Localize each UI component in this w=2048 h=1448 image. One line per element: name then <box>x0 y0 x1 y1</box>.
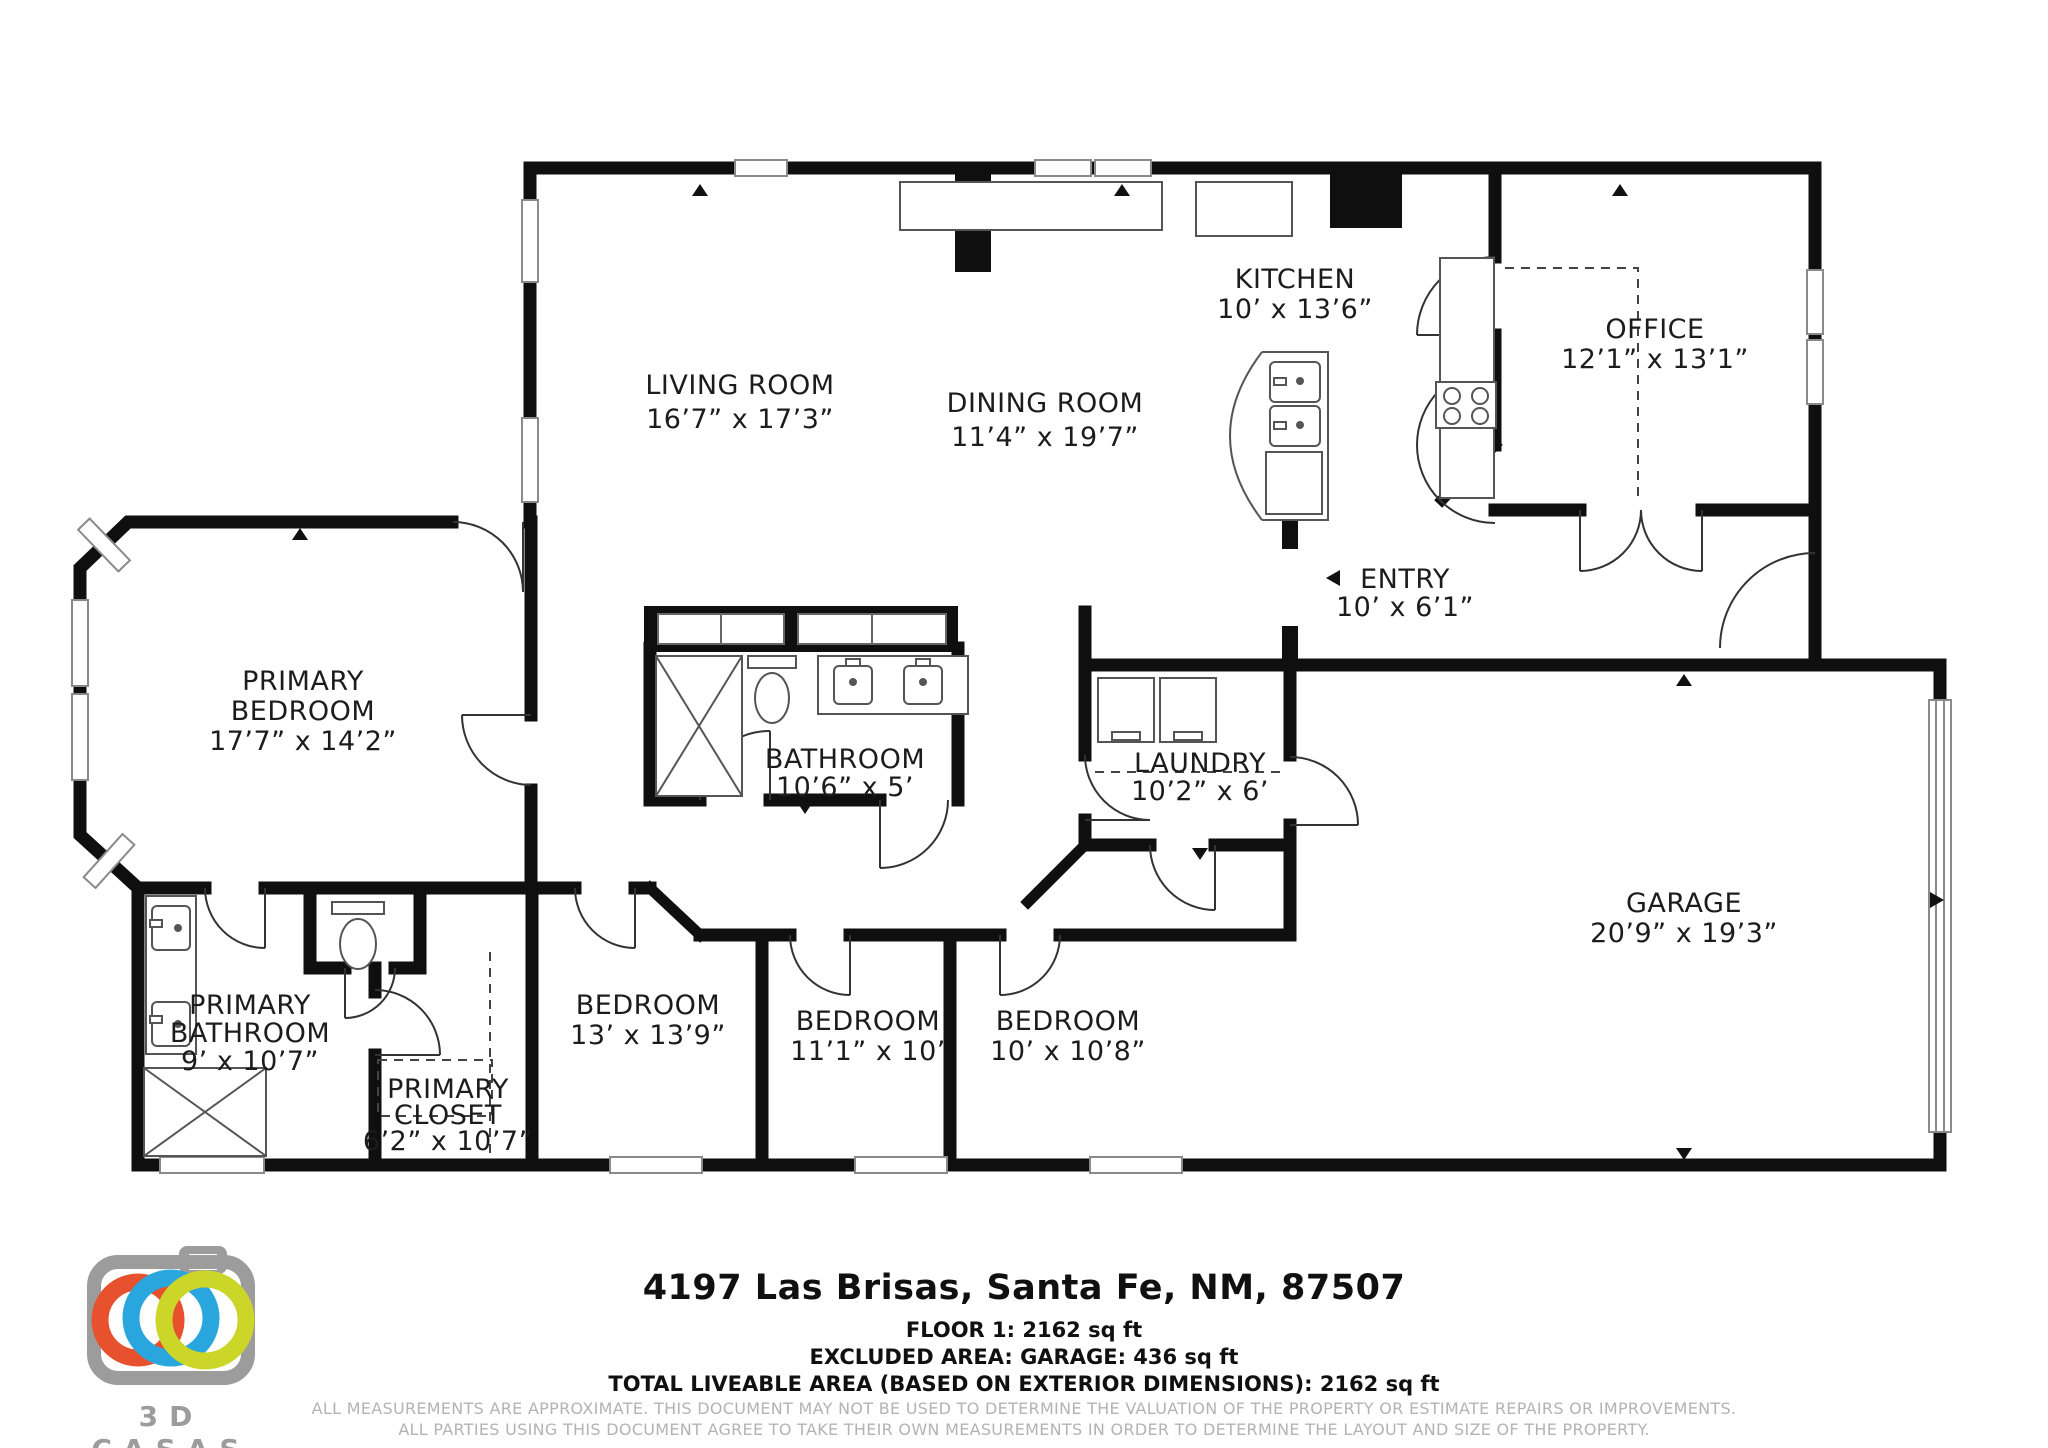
label-primary-bathroom-dims: 9’ x 10’7” <box>181 1046 319 1077</box>
disclaimer-line-1: ALL MEASUREMENTS ARE APPROXIMATE. THIS D… <box>0 1399 2048 1418</box>
label-dining-room-dims: 11’4” x 19’7” <box>951 422 1139 453</box>
label-laundry-name: LAUNDRY <box>1134 748 1266 779</box>
total-liveable-area: TOTAL LIVEABLE AREA (BASED ON EXTERIOR D… <box>0 1372 2048 1396</box>
primary-toilet-tank <box>332 902 384 914</box>
doors <box>205 257 1815 1055</box>
label-bedroom1-dims: 13’ x 13’9” <box>570 1020 726 1051</box>
fridge <box>1196 182 1292 236</box>
excluded-area: EXCLUDED AREA: GARAGE: 436 sq ft <box>0 1345 2048 1369</box>
label-bedroom3-name: BEDROOM <box>996 1006 1140 1037</box>
label-office-dims: 12’1” x 13’1” <box>1561 344 1749 375</box>
primary-toilet-bowl <box>340 919 376 969</box>
label-dining-room-name: DINING ROOM <box>947 388 1144 419</box>
footer: 4197 Las Brisas, Santa Fe, NM, 87507 FLO… <box>0 1268 2048 1441</box>
label-bathroom-name: BATHROOM <box>765 744 925 775</box>
label-garage-dims: 20’9” x 19’3” <box>1590 918 1778 949</box>
property-address: 4197 Las Brisas, Santa Fe, NM, 87507 <box>0 1268 2048 1308</box>
hall-closets <box>658 614 946 644</box>
label-primary-bathroom-name2: BATHROOM <box>170 1018 330 1049</box>
label-kitchen-name: KITCHEN <box>1235 264 1356 295</box>
label-bathroom-dims: 10’6” x 5’ <box>776 772 914 803</box>
label-laundry-dims: 10’2” x 6’ <box>1131 776 1269 807</box>
toilet-bowl <box>755 673 789 723</box>
floor-area: FLOOR 1: 2162 sq ft <box>0 1318 2048 1342</box>
disclaimer-line-2: ALL PARTIES USING THIS DOCUMENT AGREE TO… <box>0 1420 2048 1439</box>
toilet-tank <box>748 656 796 668</box>
label-entry-name: ENTRY <box>1360 564 1450 595</box>
label-primary-bathroom-name1: PRIMARY <box>189 990 311 1021</box>
label-primary-bedroom-name2: BEDROOM <box>231 696 375 727</box>
label-primary-bedroom-name1: PRIMARY <box>242 666 364 697</box>
kitchen-right-counter <box>1440 258 1494 498</box>
floor-plan-drawing: LIVING ROOM 16’7” x 17’3” DINING ROOM 11… <box>0 0 2048 1448</box>
label-primary-bedroom-dims: 17’7” x 14’2” <box>209 726 397 757</box>
label-living-room-dims: 16’7” x 17’3” <box>646 404 834 435</box>
label-bedroom3-dims: 10’ x 10’8” <box>990 1036 1146 1067</box>
label-entry-dims: 10’ x 6’1” <box>1336 592 1474 623</box>
room-labels: LIVING ROOM 16’7” x 17’3” DINING ROOM 11… <box>170 264 1778 1157</box>
label-garage-name: GARAGE <box>1626 888 1742 919</box>
label-kitchen-dims: 10’ x 13’6” <box>1217 294 1373 325</box>
label-office-name: OFFICE <box>1605 314 1704 345</box>
label-primary-closet-dims: 6’2” x 10’7” <box>363 1126 533 1157</box>
floor-plan-page: LIVING ROOM 16’7” x 17’3” DINING ROOM 11… <box>0 0 2048 1448</box>
label-bedroom2-dims: 11’1” x 10’ <box>790 1036 946 1067</box>
label-bedroom2-name: BEDROOM <box>796 1006 940 1037</box>
label-living-room-name: LIVING ROOM <box>645 370 834 401</box>
label-bedroom1-name: BEDROOM <box>576 990 720 1021</box>
